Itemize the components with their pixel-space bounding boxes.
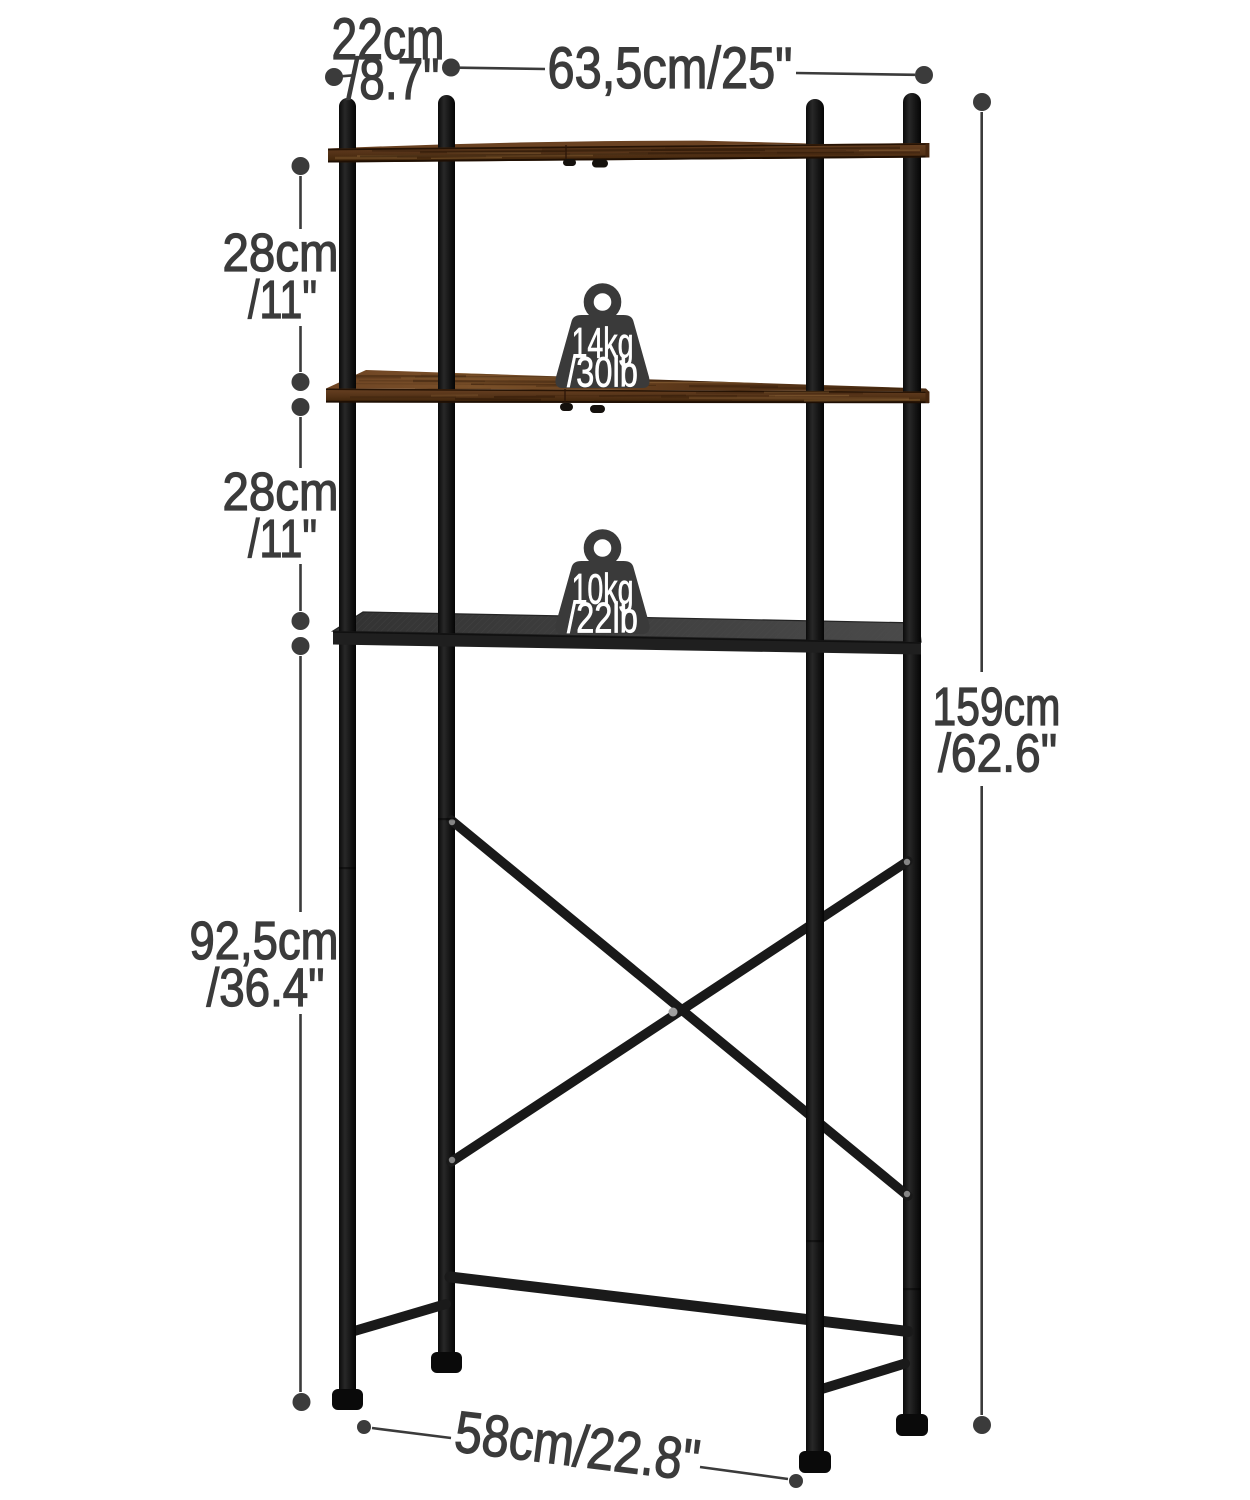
svg-text:/11": /11" xyxy=(248,271,317,330)
svg-text:/30lb: /30lb xyxy=(567,349,638,397)
svg-text:/8.7": /8.7" xyxy=(347,47,440,112)
svg-text:/62.6": /62.6" xyxy=(938,725,1057,784)
svg-text:/11": /11" xyxy=(248,510,317,569)
svg-text:/22lb: /22lb xyxy=(567,595,638,643)
svg-text:63,5cm/25": 63,5cm/25" xyxy=(548,36,793,101)
svg-text:/36.4": /36.4" xyxy=(207,959,325,1018)
